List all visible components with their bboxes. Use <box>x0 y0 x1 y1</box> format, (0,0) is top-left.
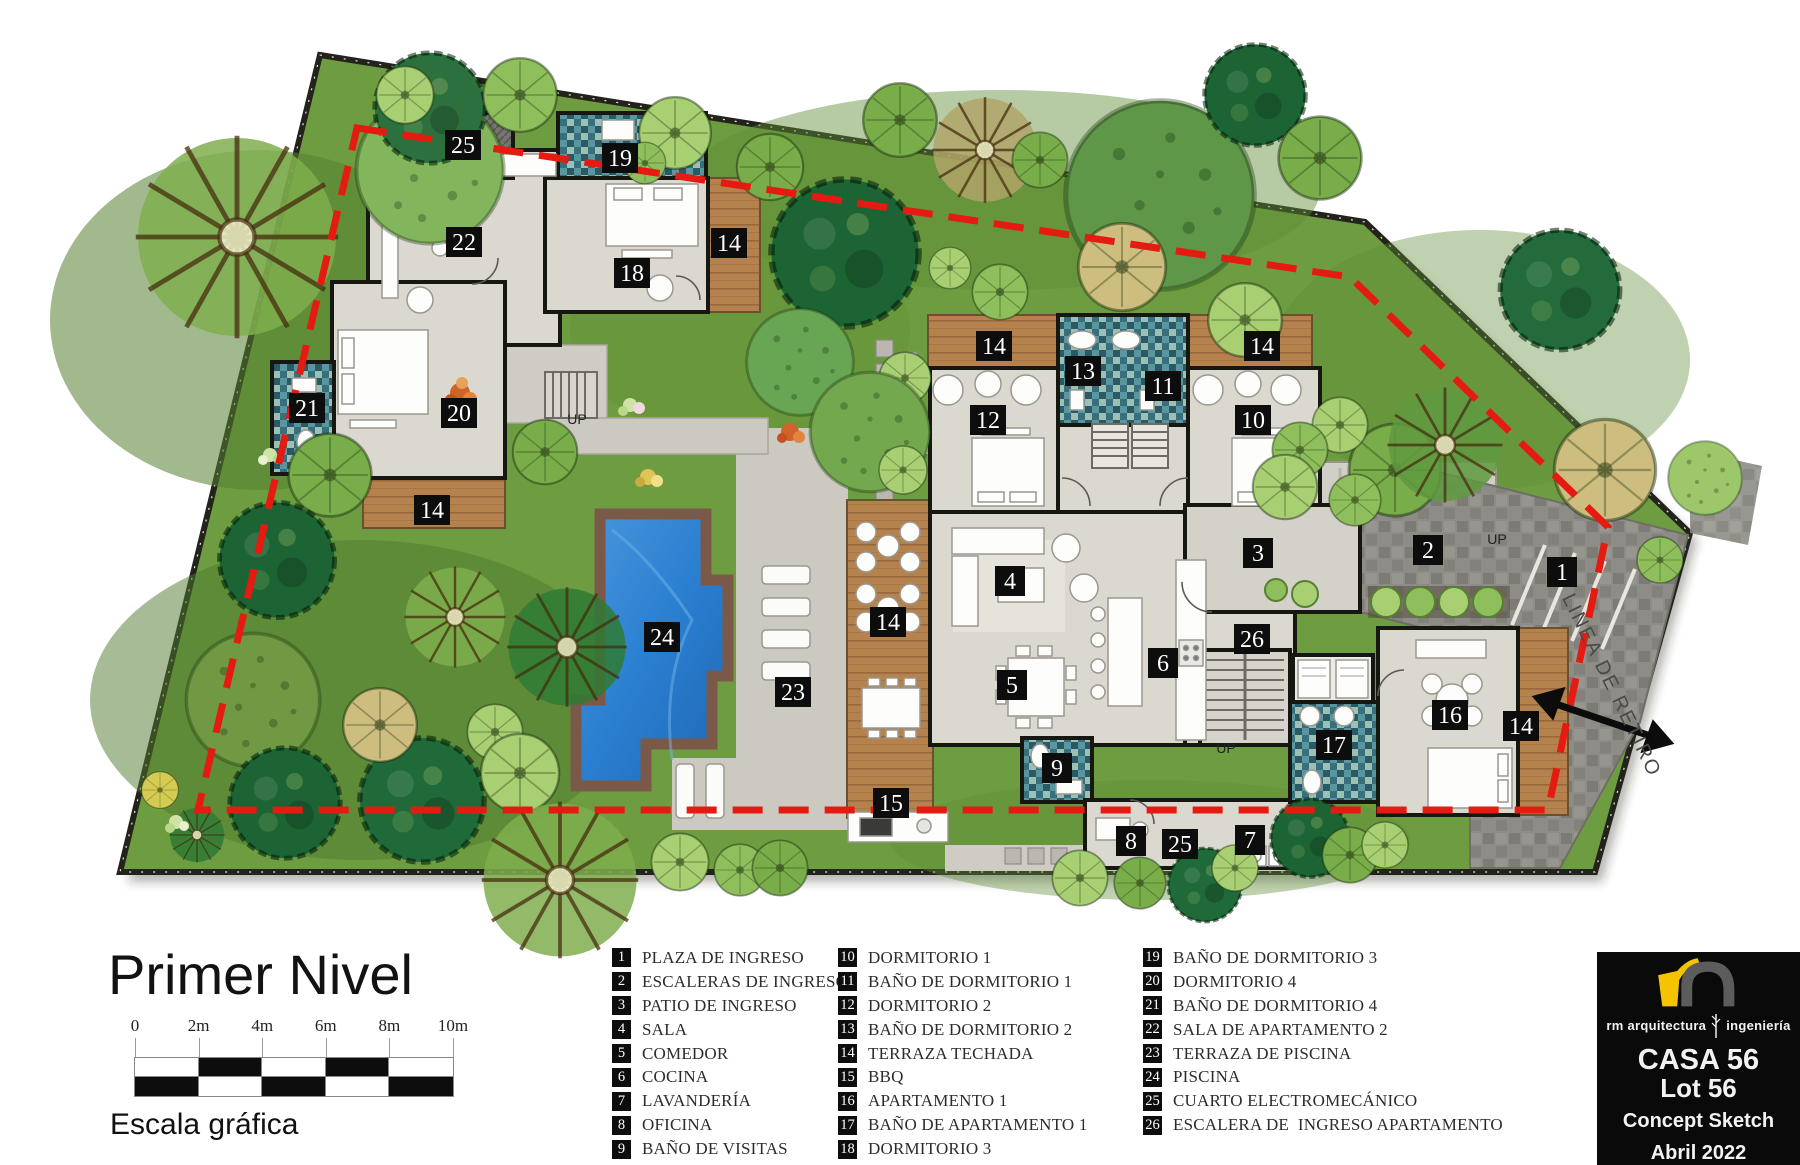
legend-item: 12DORMITORIO 2 <box>838 994 1088 1018</box>
svg-text:6: 6 <box>1157 651 1169 677</box>
svg-text:17: 17 <box>1322 733 1346 759</box>
scale-cell <box>135 1077 199 1096</box>
legend-item-label: BAÑO DE DORMITORIO 3 <box>1173 948 1377 968</box>
plan-annotation: UP <box>567 411 586 427</box>
legend-item-label: COCINA <box>642 1067 708 1087</box>
svg-text:14: 14 <box>420 498 444 524</box>
legend-item-number: 14 <box>838 1044 857 1063</box>
legend-item: 10DORMITORIO 1 <box>838 946 1088 970</box>
plan-annotation: UP <box>1487 531 1506 547</box>
legend-item-label: OFICINA <box>642 1115 712 1135</box>
svg-text:1: 1 <box>1556 560 1568 586</box>
legend-item-label: DORMITORIO 4 <box>1173 972 1296 992</box>
legend-item-number: 13 <box>838 1020 857 1039</box>
svg-text:16: 16 <box>1438 703 1462 729</box>
scale-label: 6m <box>296 1016 356 1036</box>
scale-label: 0 <box>105 1016 165 1036</box>
plan-title: Primer Nivel <box>108 942 413 1007</box>
legend-item: 14TERRAZA TECHADA <box>838 1042 1088 1066</box>
legend-item-number: 11 <box>838 972 857 991</box>
svg-text:20: 20 <box>447 401 471 427</box>
legend-item: 18DORMITORIO 3 <box>838 1137 1088 1161</box>
legend-column: 1PLAZA DE INGRESO2ESCALERAS DE INGRESO3P… <box>612 946 848 1161</box>
room-badge: 18 <box>614 258 650 288</box>
legend-item-number: 23 <box>1143 1044 1162 1063</box>
scale-cell <box>135 1058 199 1077</box>
legend-item-number: 4 <box>612 1020 631 1039</box>
svg-text:14: 14 <box>1509 714 1533 740</box>
legend-item-label: SALA DE APARTAMENTO 2 <box>1173 1020 1388 1040</box>
firm-logo <box>1629 952 1769 1015</box>
svg-text:14: 14 <box>876 610 900 636</box>
room-badge: 2 <box>1413 535 1443 565</box>
room-badge: 16 <box>1432 700 1468 730</box>
legend-item: 22SALA DE APARTAMENTO 2 <box>1143 1018 1503 1042</box>
legend-item-number: 19 <box>1143 948 1162 967</box>
legend-item: 16APARTAMENTO 1 <box>838 1089 1088 1113</box>
room-badge: 14 <box>1503 711 1539 741</box>
legend-item-number: 10 <box>838 948 857 967</box>
legend-item: 6COCINA <box>612 1065 848 1089</box>
room-badge: 22 <box>446 227 482 257</box>
room-badge: 19 <box>602 143 638 173</box>
svg-text:15: 15 <box>879 791 903 817</box>
legend-item-number: 16 <box>838 1092 857 1111</box>
room-badge: 26 <box>1234 624 1270 654</box>
svg-text:9: 9 <box>1051 756 1063 782</box>
svg-text:18: 18 <box>620 261 644 287</box>
legend-item-label: BBQ <box>868 1067 904 1087</box>
legend-item: 3PATIO DE INGRESO <box>612 994 848 1018</box>
legend-item-number: 8 <box>612 1116 631 1135</box>
legend-item-number: 12 <box>838 996 857 1015</box>
legend-item-label: SALA <box>642 1020 687 1040</box>
legend-item-label: LAVANDERÍA <box>642 1091 751 1111</box>
svg-text:2: 2 <box>1422 538 1434 564</box>
firm-name: rm arquitectura ingeniería <box>1606 1013 1790 1039</box>
legend-item: 5COMEDOR <box>612 1042 848 1066</box>
firm-name-left: rm arquitectura <box>1606 1018 1706 1033</box>
room-badge: 3 <box>1243 538 1273 568</box>
plan-annotation: UP <box>1216 740 1235 756</box>
scale-cell <box>389 1077 453 1096</box>
svg-text:25: 25 <box>451 133 475 159</box>
svg-text:14: 14 <box>982 334 1006 360</box>
legend-item-label: TERRAZA DE PISCINA <box>1173 1044 1351 1064</box>
firm-name-right: ingeniería <box>1726 1018 1790 1033</box>
legend-item: 20DORMITORIO 4 <box>1143 970 1503 994</box>
svg-text:14: 14 <box>717 231 741 257</box>
scale-cell <box>262 1077 326 1096</box>
legend-item-label: PISCINA <box>1173 1067 1241 1087</box>
scale-label: 4m <box>232 1016 292 1036</box>
room-badge: 8 <box>1116 826 1146 856</box>
room-badge: 23 <box>775 677 811 707</box>
room-badge: 14 <box>870 607 906 637</box>
room-badge: 5 <box>997 670 1027 700</box>
svg-text:3: 3 <box>1252 541 1264 567</box>
svg-text:26: 26 <box>1240 627 1264 653</box>
room-badge: 4 <box>995 566 1025 596</box>
legend-column: 10DORMITORIO 111BAÑO DE DORMITORIO 112DO… <box>838 946 1088 1161</box>
room-badge: 14 <box>976 331 1012 361</box>
legend-item: 1PLAZA DE INGRESO <box>612 946 848 970</box>
scale-label: 10m <box>423 1016 483 1036</box>
legend-item-label: BAÑO DE DORMITORIO 4 <box>1173 996 1377 1016</box>
legend-item: 25CUARTO ELECTROMECÁNICO <box>1143 1089 1503 1113</box>
legend-item: 21BAÑO DE DORMITORIO 4 <box>1143 994 1503 1018</box>
legend-item: 19BAÑO DE DORMITORIO 3 <box>1143 946 1503 970</box>
svg-text:7: 7 <box>1244 828 1256 854</box>
legend-item-number: 7 <box>612 1092 631 1111</box>
drawing-phase: Concept Sketch <box>1623 1110 1774 1133</box>
svg-text:21: 21 <box>295 396 319 422</box>
room-badge: 10 <box>1235 405 1271 435</box>
drawing-date: Abril 2022 <box>1651 1142 1747 1165</box>
room-badge: 12 <box>970 405 1006 435</box>
legend-item-number: 24 <box>1143 1068 1162 1087</box>
project-name: CASA 56 <box>1638 1045 1759 1075</box>
scale-bar-checker <box>135 1058 453 1096</box>
legend-item-label: BAÑO DE APARTAMENTO 1 <box>868 1115 1088 1135</box>
legend-item-label: CUARTO ELECTROMECÁNICO <box>1173 1091 1417 1111</box>
room-badge: 17 <box>1316 730 1352 760</box>
legend-item: 2ESCALERAS DE INGRESO <box>612 970 848 994</box>
floor-plan-sheet: 1234567891011121314141414141415161718192… <box>0 0 1800 1165</box>
legend-item-number: 18 <box>838 1140 857 1159</box>
scale-label: 2m <box>169 1016 229 1036</box>
room-badge: 13 <box>1065 356 1101 386</box>
legend-column: 19BAÑO DE DORMITORIO 320DORMITORIO 421BA… <box>1143 946 1503 1137</box>
scale-cell <box>389 1058 453 1077</box>
legend-item-number: 25 <box>1143 1092 1162 1111</box>
legend-item-label: PATIO DE INGRESO <box>642 996 797 1016</box>
svg-text:24: 24 <box>650 625 674 651</box>
legend-item-label: ESCALERAS DE INGRESO <box>642 972 848 992</box>
legend-item-number: 17 <box>838 1116 857 1135</box>
legend-item-label: DORMITORIO 3 <box>868 1139 991 1159</box>
legend-item-label: DORMITORIO 1 <box>868 948 991 968</box>
room-badge: 14 <box>711 228 747 258</box>
legend-item: 8OFICINA <box>612 1113 848 1137</box>
legend-item-number: 20 <box>1143 972 1162 991</box>
legend-item: 15BBQ <box>838 1065 1088 1089</box>
legend-item-number: 15 <box>838 1068 857 1087</box>
legend-item-label: DORMITORIO 2 <box>868 996 991 1016</box>
room-badge: 9 <box>1042 753 1072 783</box>
svg-text:12: 12 <box>976 408 1000 434</box>
room-badge: 6 <box>1148 648 1178 678</box>
legend-item: 4SALA <box>612 1018 848 1042</box>
legend-item: 13BAÑO DE DORMITORIO 2 <box>838 1018 1088 1042</box>
svg-text:8: 8 <box>1125 829 1137 855</box>
scale-cell <box>326 1077 390 1096</box>
legend-item-number: 1 <box>612 948 631 967</box>
room-badge: 20 <box>441 398 477 428</box>
legend-item-label: COMEDOR <box>642 1044 728 1064</box>
legend-item-number: 3 <box>612 996 631 1015</box>
legend-item-number: 9 <box>612 1140 631 1159</box>
legend-item-label: ESCALERA DE INGRESO APARTAMENTO <box>1173 1115 1503 1135</box>
legend-item: 7LAVANDERÍA <box>612 1089 848 1113</box>
svg-text:13: 13 <box>1071 359 1095 385</box>
legend-item-number: 5 <box>612 1044 631 1063</box>
scale-caption: Escala gráfica <box>110 1108 298 1142</box>
legend-item: 9BAÑO DE VISITAS <box>612 1137 848 1161</box>
svg-text:25: 25 <box>1168 832 1192 858</box>
svg-text:4: 4 <box>1004 569 1016 595</box>
legend-item-label: BAÑO DE VISITAS <box>642 1139 788 1159</box>
scale-bar: 02m4m6m8m10m <box>135 1016 455 1116</box>
legend-item-label: TERRAZA TECHADA <box>868 1044 1034 1064</box>
legend-item-number: 26 <box>1143 1116 1162 1135</box>
legend-item-number: 2 <box>612 972 631 991</box>
legend-item-number: 6 <box>612 1068 631 1087</box>
legend-item-label: BAÑO DE DORMITORIO 1 <box>868 972 1072 992</box>
legend-item-label: APARTAMENTO 1 <box>868 1091 1008 1111</box>
room-badge: 14 <box>1244 331 1280 361</box>
legend-item-number: 22 <box>1143 1020 1162 1039</box>
room-badge: 25 <box>445 130 481 160</box>
room-badge: 24 <box>644 622 680 652</box>
legend-item: 23TERRAZA DE PISCINA <box>1143 1042 1503 1066</box>
scale-cell <box>262 1058 326 1077</box>
svg-text:22: 22 <box>452 230 476 256</box>
svg-text:11: 11 <box>1151 374 1174 400</box>
room-badge: 7 <box>1235 825 1265 855</box>
svg-text:14: 14 <box>1250 334 1274 360</box>
room-badge: 15 <box>873 788 909 818</box>
scale-label: 8m <box>359 1016 419 1036</box>
legend-item: 24PISCINA <box>1143 1065 1503 1089</box>
title-block: rm arquitectura ingeniería CASA 56 Lot 5… <box>1597 952 1800 1165</box>
room-badge: 21 <box>289 393 325 423</box>
legend-item: 11BAÑO DE DORMITORIO 1 <box>838 970 1088 994</box>
svg-text:23: 23 <box>781 680 805 706</box>
room-badge: 14 <box>414 495 450 525</box>
room-badge: 11 <box>1145 371 1181 401</box>
legend-item: 26ESCALERA DE INGRESO APARTAMENTO <box>1143 1113 1503 1137</box>
legend-item: 17BAÑO DE APARTAMENTO 1 <box>838 1113 1088 1137</box>
scale-cell <box>199 1077 263 1096</box>
svg-text:19: 19 <box>608 146 632 172</box>
legend-item-number: 21 <box>1143 996 1162 1015</box>
scale-tick <box>453 1038 454 1096</box>
legend-item-label: PLAZA DE INGRESO <box>642 948 804 968</box>
room-badge: 25 <box>1162 829 1198 859</box>
svg-text:5: 5 <box>1006 673 1018 699</box>
legend-item-label: BAÑO DE DORMITORIO 2 <box>868 1020 1072 1040</box>
tree-separator-icon <box>1711 1013 1721 1039</box>
scale-cell <box>199 1058 263 1077</box>
scale-cell <box>326 1058 390 1077</box>
room-badge: 1 <box>1547 557 1577 587</box>
svg-text:10: 10 <box>1241 408 1265 434</box>
lot-number: Lot 56 <box>1660 1075 1737 1101</box>
